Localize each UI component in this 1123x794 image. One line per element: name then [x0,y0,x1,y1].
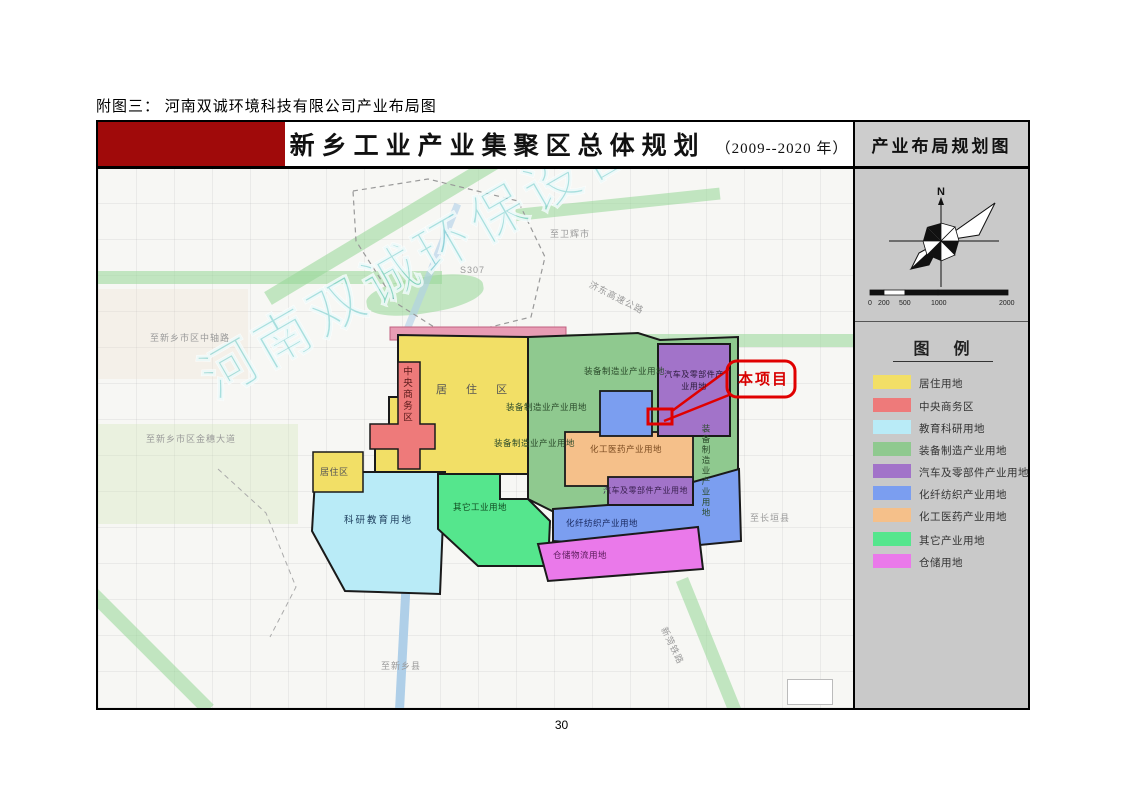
figure-caption: 附图三： 河南双诚环境科技有限公司产业布局图 [96,95,437,116]
legend-swatch-warehouse [873,554,911,568]
legend-label: 化工医药产业用地 [919,509,1007,524]
legend-label: 教育科研用地 [919,421,985,436]
zone-label-textile: 化纤纺织产业用地 [566,517,638,529]
map-inset-box [787,679,833,705]
legend-item: 居住用地 [855,375,1028,391]
planning-map[interactable]: 河南双诚环保设备 中央商务区 居 住 区 装备制造业产业用地 装备制造业产业用地… [98,169,853,708]
legend-item: 其它产业用地 [855,532,1028,548]
plan-year-range: （2009--2020 年） [716,131,849,158]
zone-label-education: 科研教育用地 [344,512,413,526]
admin-boundary-dashed [218,469,296,637]
legend-item: 中央商务区 [855,398,1028,414]
scale-tick: 200 [878,300,890,307]
legend-label: 装备制造产业用地 [919,443,1007,458]
legend-label: 化纤纺织产业用地 [919,487,1007,502]
zone-label-equipment: 装备制造业产业用地 [506,401,587,413]
page-number: 30 [0,718,1123,732]
legend-label: 仓储用地 [919,555,963,570]
legend-swatch-cbd [873,398,911,412]
zone-label-chem-pharma: 化工医药产业用地 [590,443,662,455]
legend-label: 居住用地 [919,376,963,391]
legend-sidebar: N 0 200 500 [853,169,1028,708]
scale-tick: 1000 [931,300,947,307]
legend-swatch-chem-pharma [873,508,911,522]
header-title-cell: 新乡工业产业集聚区总体规划 （2009--2020 年） [285,122,853,166]
legend-item: 装备制造产业用地 [855,442,1028,458]
planning-figure-frame: 新乡工业产业集聚区总体规划 （2009--2020 年） 产业布局规划图 [96,120,1030,710]
figure-header: 新乡工业产业集聚区总体规划 （2009--2020 年） 产业布局规划图 [98,122,1028,168]
legend-title-underline [893,361,993,362]
project-callout-label: 本项目 [738,368,789,389]
legend-swatch-equipment [873,442,911,456]
legend-title: 图 例 [855,335,1028,359]
legend-label: 其它产业用地 [919,533,985,548]
legend-item: 化工医药产业用地 [855,508,1028,524]
legend-swatch-education [873,420,911,434]
legend-swatch-textile [873,486,911,500]
legend-item: 化纤纺织产业用地 [855,486,1028,502]
scale-tick: 500 [899,300,911,307]
road-label-jinsui: 至新乡市区金穗大道 [146,432,236,445]
compass-rose-icon: N [875,183,1010,295]
road-label-s307: S307 [460,265,485,275]
road-label-weihui: 至卫辉市 [550,227,590,240]
road-label-changyuan: 至长垣县 [750,511,790,524]
panel-title: 产业布局规划图 [872,132,1012,157]
zone-label-warehouse: 仓储物流用地 [553,549,607,561]
scale-tick: 2000 [999,300,1015,307]
legend-label: 汽车及零部件产业用地 [919,465,1029,480]
legend-swatch-other [873,532,911,546]
legend-swatch-auto-parts [873,464,911,478]
legend-item: 教育科研用地 [855,420,1028,436]
zone-label-equipment: 装备制造业产业用地 [494,437,575,449]
panel-title-cell: 产业布局规划图 [853,122,1028,166]
admin-boundary-dashed [353,179,545,337]
legend-label: 中央商务区 [919,399,974,414]
zone-label-auto-parts: 汽车及零部件产业用地 [603,485,688,496]
zone-label-equipment: 装备制造业产业用地 [584,365,665,377]
zone-textile-block[interactable] [600,391,652,436]
zone-label-residential: 居 住 区 [436,381,515,397]
legend-item: 仓储用地 [855,554,1028,570]
header-red-block [98,122,285,166]
compass-n-label: N [937,186,945,198]
zone-label-other-industry: 其它工业用地 [453,501,507,513]
road-label-zhongzhou: 至新乡市区中轴路 [150,331,230,344]
zone-label-equipment-vertical: 装备制造业产业用地 [700,424,712,536]
zone-label-cbd: 中央商务区 [399,366,413,476]
sidebar-divider [855,321,1028,322]
scale-bar: 0 200 500 1000 2000 [868,287,1018,311]
zone-label-residential-small: 居住区 [320,465,349,478]
legend-swatch-residential [873,375,911,389]
plan-title: 新乡工业产业集聚区总体规划 [290,126,706,162]
legend-item: 汽车及零部件产业用地 [855,464,1028,480]
scale-tick: 0 [868,300,872,307]
zone-label-auto-parts-top: 汽车及零部件产业用地 [662,369,726,393]
road-label-xinxiang-county: 至新乡县 [381,659,421,672]
